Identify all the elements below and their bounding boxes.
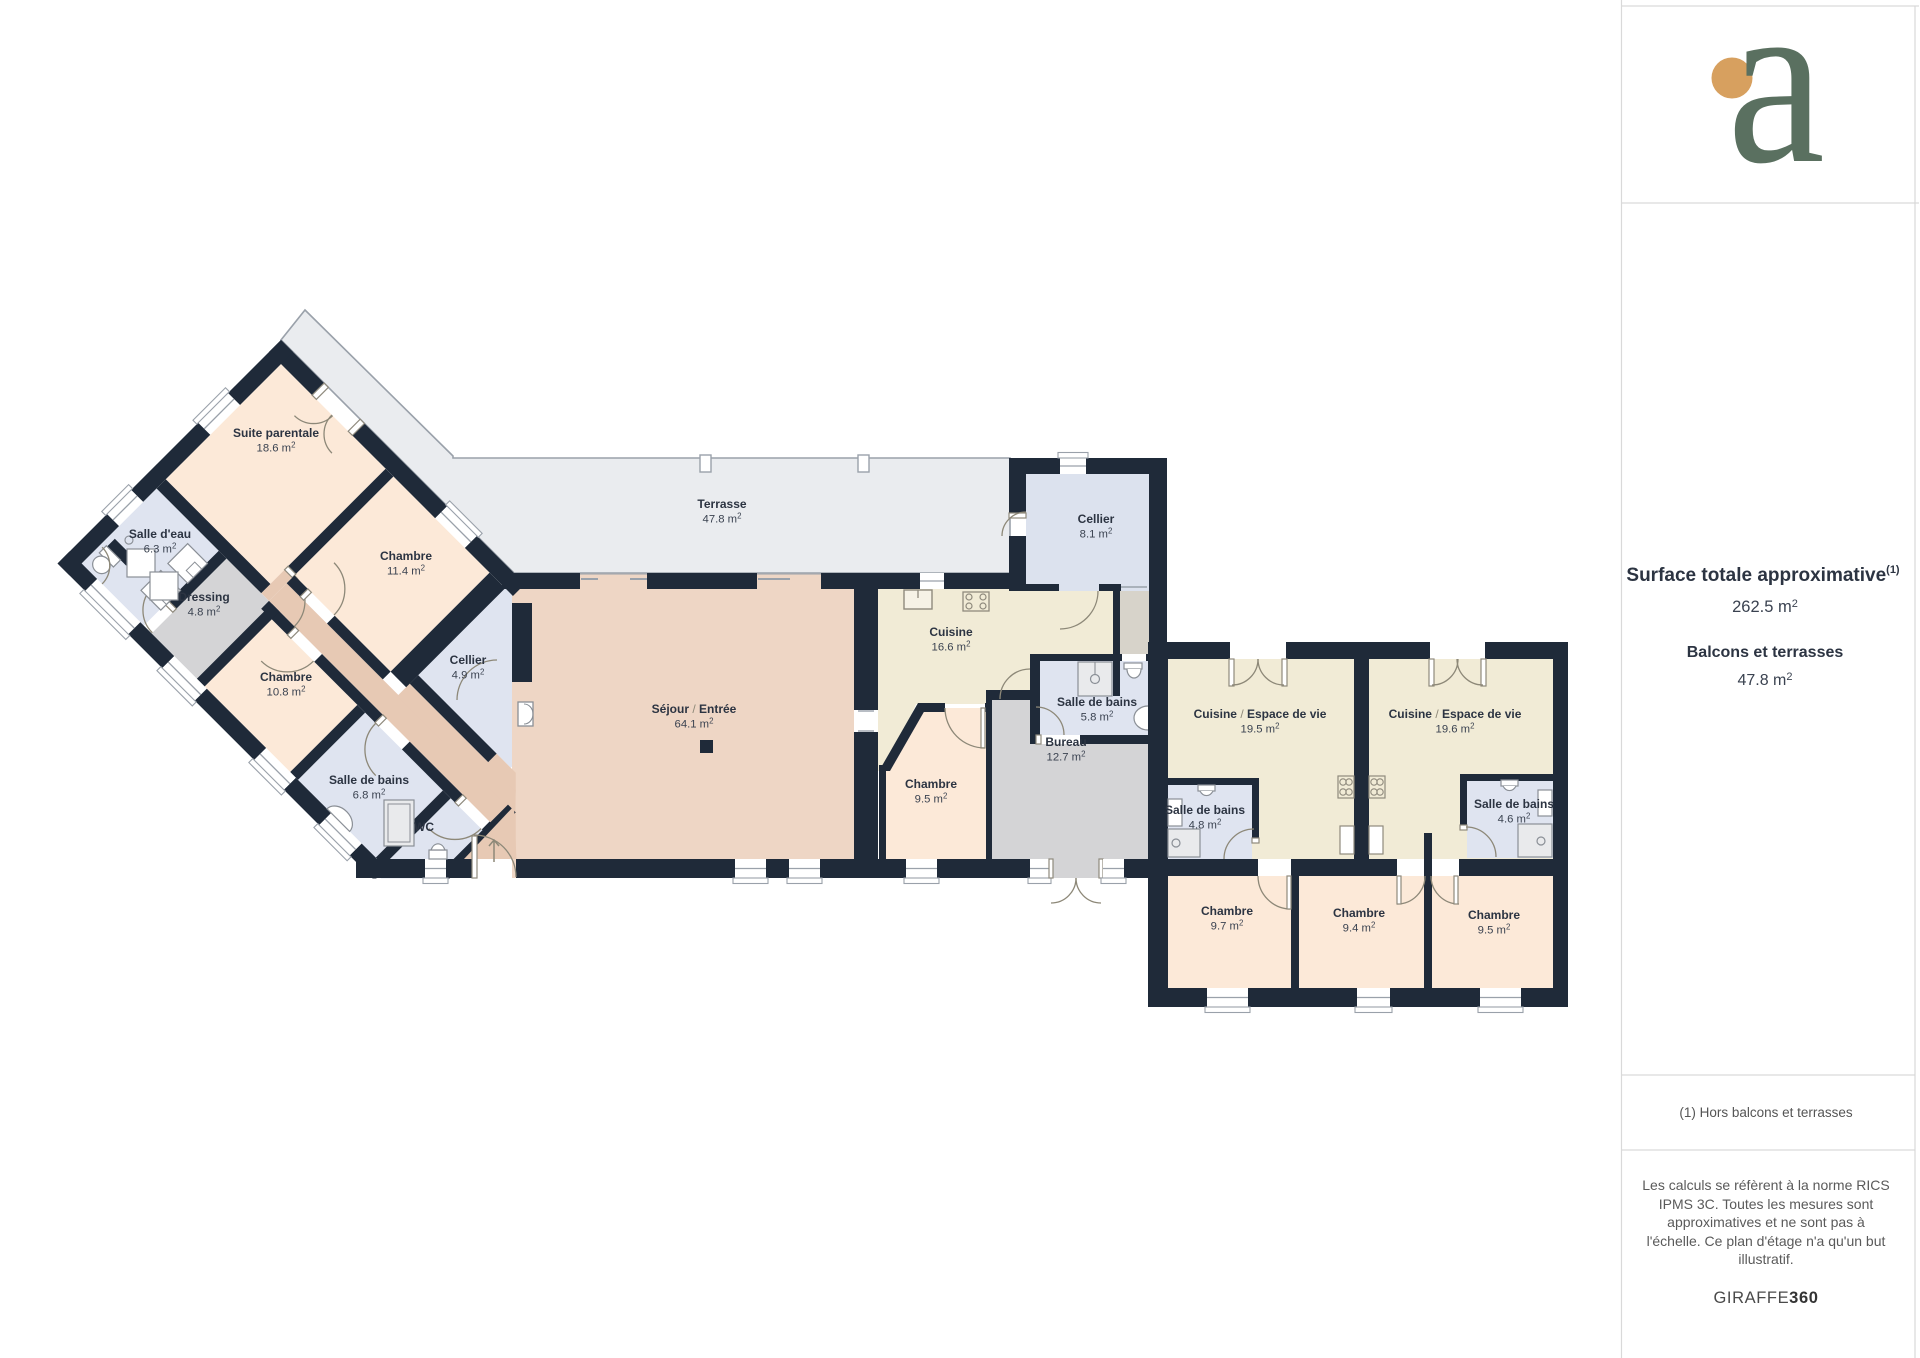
svg-text:l'échelle. Ce plan d'étage n'a: l'échelle. Ce plan d'étage n'a qu'un but — [1647, 1233, 1886, 1249]
svg-text:Dressing: Dressing — [178, 590, 229, 604]
svg-text:Cellier: Cellier — [450, 653, 487, 667]
svg-text:Bureau: Bureau — [1045, 735, 1086, 749]
svg-text:Chambre: Chambre — [260, 670, 312, 684]
svg-text:9.7 m2: 9.7 m2 — [1211, 919, 1244, 933]
svg-text:Salle de bains: Salle de bains — [1474, 797, 1554, 811]
svg-text:Cuisine / Espace de vie: Cuisine / Espace de vie — [1194, 707, 1327, 721]
svg-text:12.7 m2: 12.7 m2 — [1047, 750, 1086, 764]
svg-text:(1) Hors balcons et terrasses: (1) Hors balcons et terrasses — [1679, 1105, 1853, 1120]
svg-text:10.8 m2: 10.8 m2 — [267, 685, 306, 699]
svg-text:4.9 m2: 4.9 m2 — [452, 668, 485, 682]
svg-text:illustratif.: illustratif. — [1738, 1251, 1793, 1267]
svg-text:9.5 m2: 9.5 m2 — [1478, 923, 1511, 937]
svg-text:approximatives et ne sont pas: approximatives et ne sont pas à — [1667, 1214, 1865, 1230]
svg-text:5.8 m2: 5.8 m2 — [1081, 710, 1114, 724]
svg-text:Salle d'eau: Salle d'eau — [129, 527, 191, 541]
svg-text:19.5 m2: 19.5 m2 — [1241, 722, 1280, 736]
svg-text:Balcons et terrasses: Balcons et terrasses — [1687, 644, 1844, 661]
svg-text:Suite parentale: Suite parentale — [233, 426, 319, 440]
svg-text:Cellier: Cellier — [1078, 512, 1115, 526]
svg-text:Cuisine / Espace de vie: Cuisine / Espace de vie — [1389, 707, 1522, 721]
svg-text:Surface totale approximative(1: Surface totale approximative(1) — [1626, 564, 1900, 586]
svg-text:9.4 m2: 9.4 m2 — [1343, 921, 1376, 935]
svg-text:18.6 m2: 18.6 m2 — [257, 441, 296, 455]
svg-text:64.1 m2: 64.1 m2 — [675, 717, 714, 731]
svg-text:Chambre: Chambre — [380, 549, 432, 563]
svg-text:4.8 m2: 4.8 m2 — [1189, 818, 1222, 832]
svg-text:4.6 m2: 4.6 m2 — [1498, 812, 1531, 826]
svg-text:Salle de bains: Salle de bains — [1165, 803, 1245, 817]
svg-text:Les calculs se réfèrent à la n: Les calculs se réfèrent à la norme RICS — [1642, 1177, 1889, 1193]
svg-text:Cuisine: Cuisine — [929, 625, 973, 639]
svg-text:19.6 m2: 19.6 m2 — [1436, 722, 1475, 736]
svg-text:47.8 m2: 47.8 m2 — [703, 512, 742, 526]
svg-text:Salle de bains: Salle de bains — [1057, 695, 1137, 709]
svg-text:4.8 m2: 4.8 m2 — [188, 605, 221, 619]
svg-text:9.5 m2: 9.5 m2 — [915, 792, 948, 806]
svg-text:Séjour / Entrée: Séjour / Entrée — [652, 702, 737, 716]
svg-text:Chambre: Chambre — [1333, 906, 1385, 920]
svg-text:Chambre: Chambre — [905, 777, 957, 791]
svg-text:16.6 m2: 16.6 m2 — [932, 640, 971, 654]
svg-text:11.4 m2: 11.4 m2 — [387, 564, 425, 578]
svg-text:GIRAFFE360: GIRAFFE360 — [1713, 1289, 1818, 1307]
svg-text:47.8 m2: 47.8 m2 — [1737, 671, 1792, 689]
svg-text:Salle de bains: Salle de bains — [329, 773, 409, 787]
svg-text:6.3 m2: 6.3 m2 — [144, 542, 177, 556]
svg-text:Terrasse: Terrasse — [697, 497, 746, 511]
svg-text:262.5 m2: 262.5 m2 — [1732, 598, 1798, 616]
svg-text:IPMS 3C. Toutes les mesures so: IPMS 3C. Toutes les mesures sont — [1659, 1196, 1874, 1212]
svg-text:WC: WC — [414, 820, 434, 834]
svg-text:a: a — [1727, 0, 1825, 214]
svg-text:8.1 m2: 8.1 m2 — [1080, 527, 1113, 541]
svg-text:6.8 m2: 6.8 m2 — [353, 788, 386, 802]
svg-text:Chambre: Chambre — [1468, 908, 1520, 922]
svg-text:Chambre: Chambre — [1201, 904, 1253, 918]
